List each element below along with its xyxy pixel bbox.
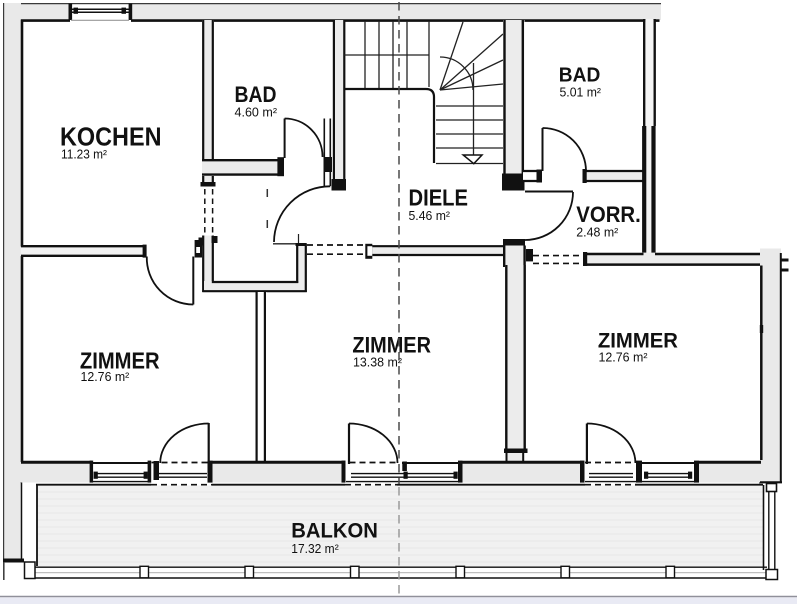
svg-text:12.76 m²: 12.76 m² — [81, 369, 130, 384]
svg-text:VORR.: VORR. — [576, 202, 641, 227]
svg-text:5.46 m²: 5.46 m² — [409, 208, 451, 223]
svg-text:4.60 m²: 4.60 m² — [235, 105, 278, 120]
svg-text:13.38 m²: 13.38 m² — [353, 355, 403, 370]
svg-text:2.48 m²: 2.48 m² — [576, 225, 619, 240]
svg-text:5.01 m²: 5.01 m² — [560, 85, 602, 100]
svg-text:BAD: BAD — [559, 65, 601, 87]
svg-text:11.23 m²: 11.23 m² — [61, 147, 108, 162]
svg-text:DIELE: DIELE — [409, 185, 469, 211]
svg-text:17.32 m²: 17.32 m² — [291, 541, 339, 556]
svg-text:BAD: BAD — [235, 82, 277, 107]
svg-text:BALKON: BALKON — [291, 518, 378, 542]
svg-text:12.76 m²: 12.76 m² — [599, 350, 649, 365]
